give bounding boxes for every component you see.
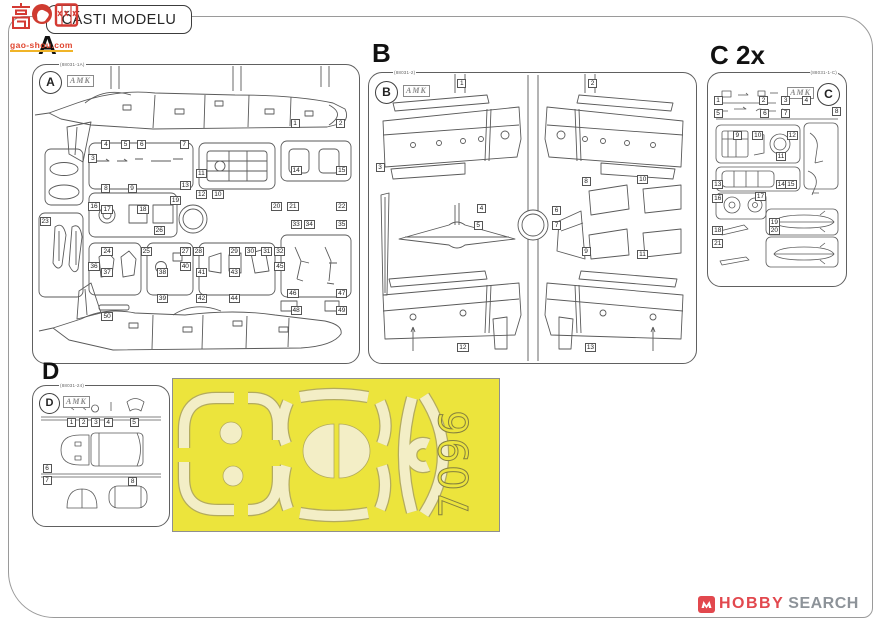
part-number-C-2: 2: [759, 96, 768, 105]
part-number-D-7: 7: [43, 476, 52, 485]
part-number-D-8: 8: [128, 477, 137, 486]
part-number-B-5: 5: [474, 221, 483, 230]
mask-sheet: 7096: [172, 378, 500, 532]
part-number-A-1: 1: [291, 119, 300, 128]
part-number-A-11: 11: [196, 169, 207, 178]
part-number-A-46: 46: [287, 289, 298, 298]
part-number-A-16: 16: [88, 202, 99, 211]
part-number-B-11: 11: [637, 250, 648, 259]
part-number-C-20: 20: [769, 226, 780, 235]
part-number-A-39: 39: [157, 294, 168, 303]
sprue-a: (88031-1A) A AMK 12345678910111213141516…: [32, 64, 360, 364]
part-number-C-13: 13: [712, 180, 723, 189]
gaoshou-watermark: gao-shou.com: [10, 2, 120, 53]
gaoshou-logo-icon: [10, 2, 88, 30]
sprue-d-code: (88031-24): [59, 383, 85, 389]
sprue-c-heading: C 2x: [710, 40, 765, 71]
part-number-A-18: 18: [137, 205, 148, 214]
part-number-C-15: 15: [785, 180, 796, 189]
part-number-A-40: 40: [180, 262, 191, 271]
part-number-C-18: 18: [712, 226, 723, 235]
part-number-C-16: 16: [712, 194, 723, 203]
part-number-B-10: 10: [637, 175, 648, 184]
wang-glyph-icon: [56, 5, 77, 26]
sprue-c: (88031-1-C) C AMK 1234567891011121314151…: [707, 72, 847, 287]
part-number-A-29: 29: [229, 247, 240, 256]
part-number-B-8: 8: [582, 177, 591, 186]
part-number-C-17: 17: [755, 192, 766, 201]
part-number-C-11: 11: [776, 152, 787, 161]
part-number-A-44: 44: [229, 294, 240, 303]
part-number-A-34: 34: [304, 220, 315, 229]
sprue-a-code: (88031-1A): [59, 62, 86, 68]
part-number-A-21: 21: [287, 202, 298, 211]
part-number-D-1: 1: [67, 418, 76, 427]
part-number-C-8: 8: [832, 107, 841, 116]
part-number-A-33: 33: [291, 220, 302, 229]
part-number-A-31: 31: [261, 247, 272, 256]
part-number-C-12: 12: [787, 131, 798, 140]
part-number-A-47: 47: [336, 289, 347, 298]
part-number-A-10: 10: [212, 190, 223, 199]
part-number-A-42: 42: [196, 294, 207, 303]
part-number-C-3: 3: [781, 96, 790, 105]
part-number-D-3: 3: [91, 418, 100, 427]
sprue-b-art: [369, 73, 696, 363]
sprue-b-circle-letter: B: [375, 81, 398, 104]
sprue-d: (88031-24) D AMK 12345678: [32, 385, 170, 527]
part-number-D-2: 2: [79, 418, 88, 427]
hobbysearch-red-square-icon: [698, 596, 715, 613]
sprue-a-circle-letter: A: [39, 71, 62, 94]
part-number-A-5: 5: [121, 140, 130, 149]
part-number-A-37: 37: [101, 268, 112, 277]
part-number-B-2: 2: [588, 79, 597, 88]
part-number-A-6: 6: [137, 140, 146, 149]
watermark-site-text: gao-shou.com: [10, 41, 73, 52]
part-number-A-23: 23: [40, 217, 51, 226]
part-number-C-5: 5: [714, 109, 723, 118]
part-number-B-4: 4: [477, 204, 486, 213]
part-number-A-41: 41: [196, 268, 207, 277]
part-number-A-9: 9: [128, 184, 137, 193]
part-number-A-38: 38: [157, 268, 168, 277]
part-number-C-1: 1: [714, 96, 723, 105]
part-number-A-45: 45: [274, 262, 285, 271]
part-number-A-48: 48: [291, 306, 302, 315]
part-number-A-30: 30: [245, 247, 256, 256]
part-number-A-14: 14: [291, 166, 302, 175]
part-number-A-24: 24: [101, 247, 112, 256]
sprue-d-heading: D: [42, 358, 59, 386]
part-number-A-50: 50: [101, 312, 112, 321]
part-number-A-28: 28: [193, 247, 204, 256]
sprue-b-heading: B: [372, 38, 391, 69]
part-number-B-6: 6: [552, 206, 561, 215]
sprue-b-amk-logo: AMK: [403, 85, 430, 97]
part-number-A-2: 2: [336, 119, 345, 128]
part-number-A-32: 32: [274, 247, 285, 256]
part-number-A-49: 49: [336, 306, 347, 315]
part-number-C-21: 21: [712, 239, 723, 248]
part-number-A-26: 26: [154, 226, 165, 235]
hobbysearch-watermark: HOBBY SEARCH: [698, 595, 859, 613]
part-number-A-3: 3: [88, 154, 97, 163]
mask-sheet-number: 7096: [432, 408, 478, 518]
part-number-A-19: 19: [170, 196, 181, 205]
part-number-B-7: 7: [552, 221, 561, 230]
part-number-A-43: 43: [229, 268, 240, 277]
part-number-A-15: 15: [336, 166, 347, 175]
part-number-A-27: 27: [180, 247, 191, 256]
sprue-d-amk-logo: AMK: [63, 396, 90, 408]
part-number-A-7: 7: [180, 140, 189, 149]
sprue-a-amk-logo: AMK: [67, 75, 94, 87]
hobbysearch-brand-primary: HOBBY: [719, 595, 784, 613]
hobbysearch-brand-secondary: SEARCH: [788, 595, 859, 613]
part-number-B-12: 12: [457, 343, 468, 352]
part-number-C-4: 4: [802, 96, 811, 105]
part-number-A-22: 22: [336, 202, 347, 211]
part-number-C-6: 6: [760, 109, 769, 118]
part-number-C-7: 7: [781, 109, 790, 118]
part-number-A-8: 8: [101, 184, 110, 193]
part-number-A-35: 35: [336, 220, 347, 229]
part-number-B-1: 1: [457, 79, 466, 88]
sprue-c-code: (88031-1-C): [810, 70, 838, 76]
part-number-D-4: 4: [104, 418, 113, 427]
part-number-C-10: 10: [752, 131, 763, 140]
sprue-d-circle-letter: D: [39, 393, 60, 414]
part-number-A-4: 4: [101, 140, 110, 149]
part-number-D-6: 6: [43, 464, 52, 473]
part-number-A-12: 12: [196, 190, 207, 199]
sprue-c-circle-letter: C: [817, 83, 840, 106]
part-number-A-36: 36: [88, 262, 99, 271]
sprue-b: (88031-2) B AMK 12345678910111213: [368, 72, 697, 364]
part-number-A-17: 17: [101, 205, 112, 214]
part-number-B-9: 9: [582, 247, 591, 256]
part-number-B-3: 3: [376, 163, 385, 172]
part-number-D-5: 5: [130, 418, 139, 427]
part-number-A-13: 13: [180, 181, 191, 190]
mask-sheet-art: 7096: [172, 378, 500, 532]
part-number-A-20: 20: [271, 202, 282, 211]
sprue-a-art: [33, 65, 359, 363]
part-number-C-9: 9: [733, 131, 742, 140]
sprue-b-code: (88031-2): [393, 70, 416, 76]
part-number-B-13: 13: [585, 343, 596, 352]
part-number-A-25: 25: [141, 247, 152, 256]
